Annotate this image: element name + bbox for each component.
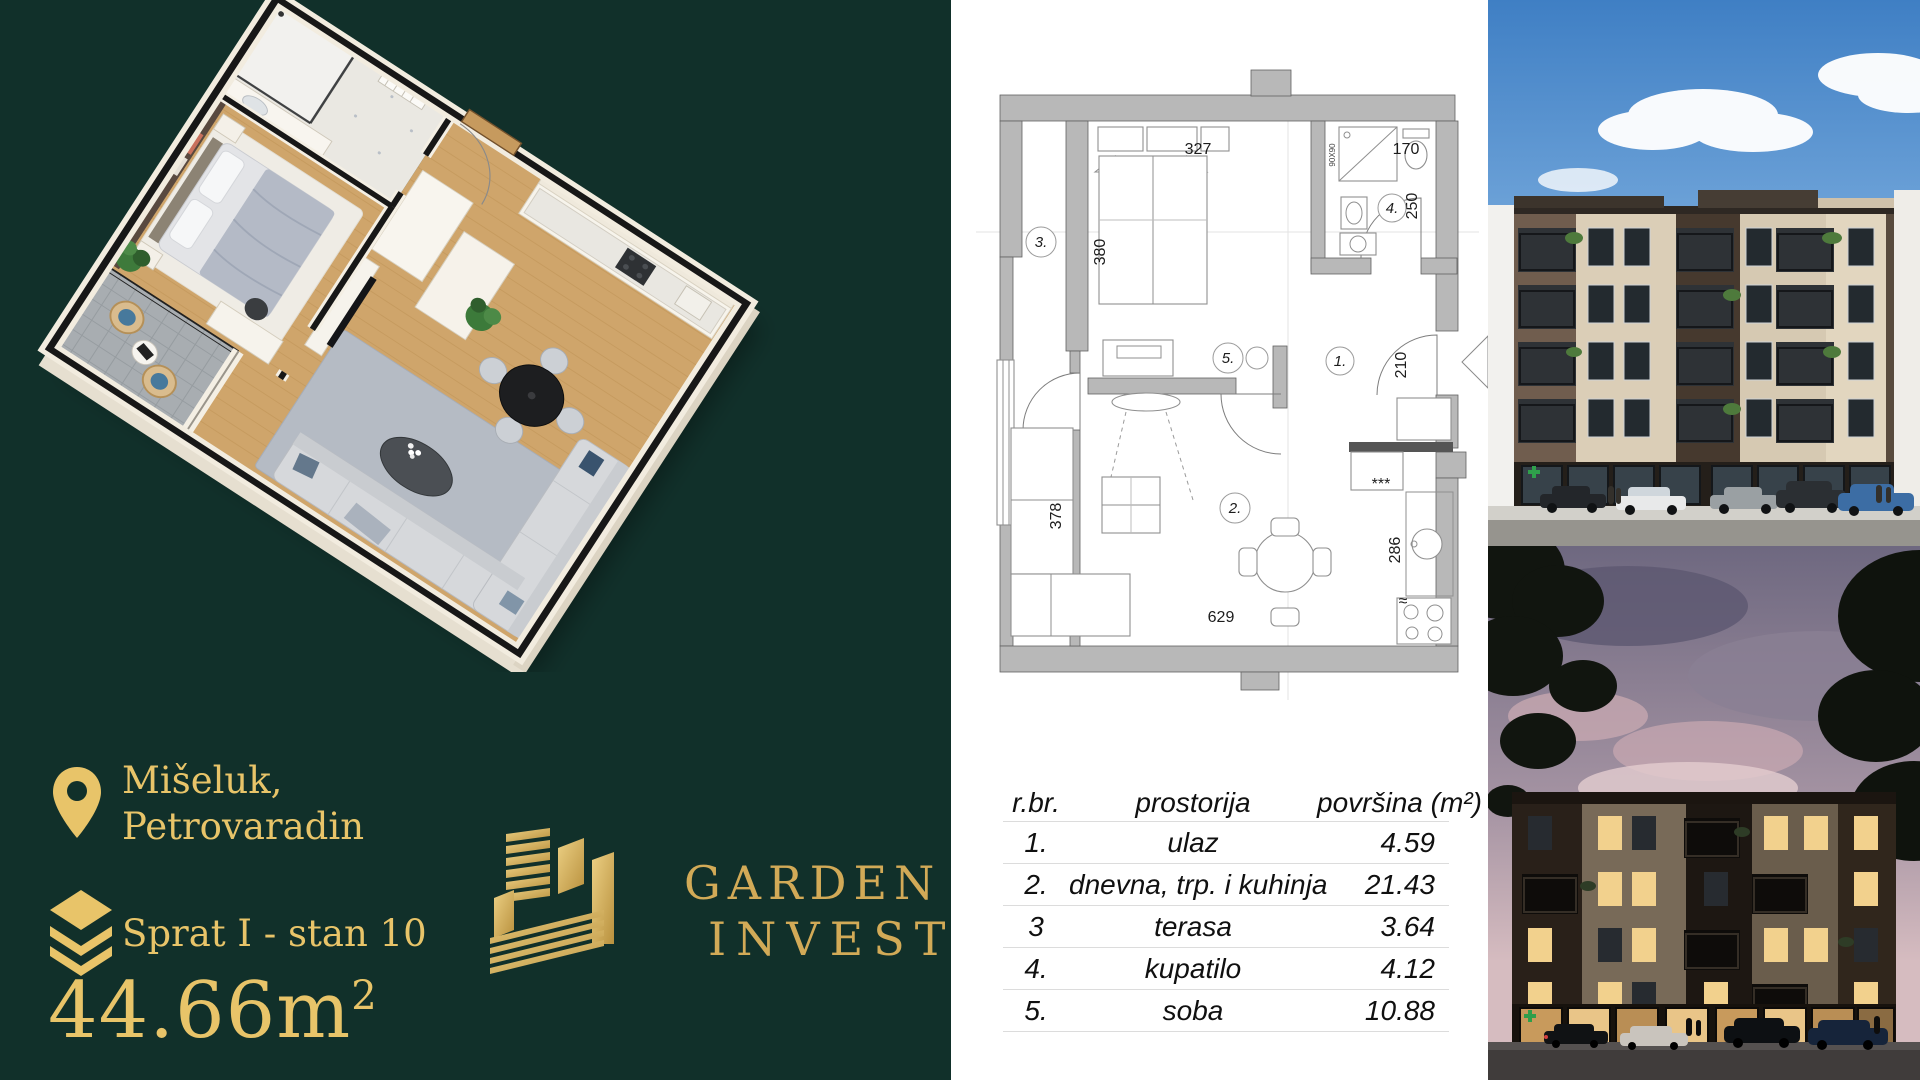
room-label-4: 4. — [1386, 200, 1399, 217]
table-header: r.br. prostorija površina (m²) — [1003, 784, 1449, 822]
real-estate-flyer: Mišeluk, Petrovaradin Sprat I - stan 10 … — [0, 0, 1920, 1080]
row-room: dnevna, trp. i kuhinja — [1069, 869, 1317, 901]
row-area: 21.43 — [1317, 869, 1449, 901]
dim-286: 286 — [1387, 537, 1404, 564]
row-room: kupatilo — [1069, 953, 1317, 985]
floor-plan-2d: 327 380 170 250 210 378 629 286 90X90 **… — [951, 0, 1488, 760]
brand-panel: Mišeluk, Petrovaradin Sprat I - stan 10 … — [0, 0, 951, 1080]
row-no: 4. — [1003, 953, 1069, 985]
table-row: 3 terasa 3.64 — [1003, 906, 1449, 948]
row-room: terasa — [1069, 911, 1317, 943]
photos-panel — [1488, 0, 1920, 1080]
dim-380: 380 — [1092, 239, 1109, 266]
row-no: 5. — [1003, 995, 1069, 1027]
room-label-2: 2. — [1228, 500, 1242, 517]
apartment-3d-render — [0, 0, 800, 672]
area-value: 44.66m — [48, 966, 351, 1056]
logo-line1: GARDEN — [684, 856, 941, 910]
row-area: 4.59 — [1317, 827, 1449, 859]
header-area: površina (m²) — [1317, 787, 1449, 819]
row-room: ulaz — [1069, 827, 1317, 859]
header-no: r.br. — [1003, 787, 1069, 819]
entrance-arrow — [1462, 336, 1488, 388]
room-label-5: 5. — [1222, 350, 1235, 367]
header-room: prostorija — [1069, 787, 1317, 819]
row-area: 4.12 — [1317, 953, 1449, 985]
area-table: r.br. prostorija površina (m²) 1. ulaz 4… — [1003, 784, 1449, 1032]
building-night — [1512, 792, 1896, 1046]
row-area: 10.88 — [1317, 995, 1449, 1027]
garden-invest-logo-icon — [488, 826, 668, 978]
dim-250: 250 — [1404, 193, 1421, 220]
location-pin-icon — [52, 766, 102, 840]
building-photo-night — [1488, 546, 1920, 1080]
hob-mark: ≈ — [1399, 593, 1408, 610]
logo-line2: INVEST — [708, 912, 955, 966]
room-label-3: 3. — [1035, 234, 1048, 251]
row-no: 3 — [1003, 911, 1069, 943]
row-room: soba — [1069, 995, 1317, 1027]
location-text: Mišeluk, Petrovaradin — [122, 758, 364, 850]
layers-icon — [48, 888, 114, 976]
kitchen-dots: *** — [1372, 476, 1391, 493]
room-label-1: 1. — [1334, 353, 1347, 370]
table-row: 1. ulaz 4.59 — [1003, 822, 1449, 864]
row-no: 1. — [1003, 827, 1069, 859]
row-no: 2. — [1003, 869, 1069, 901]
plan-bedroom — [1095, 127, 1229, 500]
floor-unit-text: Sprat I - stan 10 — [122, 912, 427, 955]
dim-327: 327 — [1185, 141, 1212, 158]
dim-378: 378 — [1048, 503, 1065, 530]
dim-210: 210 — [1393, 352, 1410, 379]
dim-629: 629 — [1208, 609, 1235, 626]
table-row: 4. kupatilo 4.12 — [1003, 948, 1449, 990]
table-row: 2. dnevna, trp. i kuhinja 21.43 — [1003, 864, 1449, 906]
area-sup: 2 — [351, 973, 376, 1019]
floor-plan-panel: 327 380 170 250 210 378 629 286 90X90 **… — [951, 0, 1488, 1080]
row-area: 3.64 — [1317, 911, 1449, 943]
table-row: 5. soba 10.88 — [1003, 990, 1449, 1032]
shower-size-label: 90X90 — [1328, 143, 1337, 167]
location-line2: Petrovaradin — [122, 804, 364, 850]
building-photo-day — [1488, 0, 1920, 546]
location-line1: Mišeluk, — [122, 758, 364, 804]
area-text: 44.66m2 — [48, 966, 377, 1056]
dim-170: 170 — [1393, 141, 1420, 158]
building-day — [1514, 190, 1894, 506]
